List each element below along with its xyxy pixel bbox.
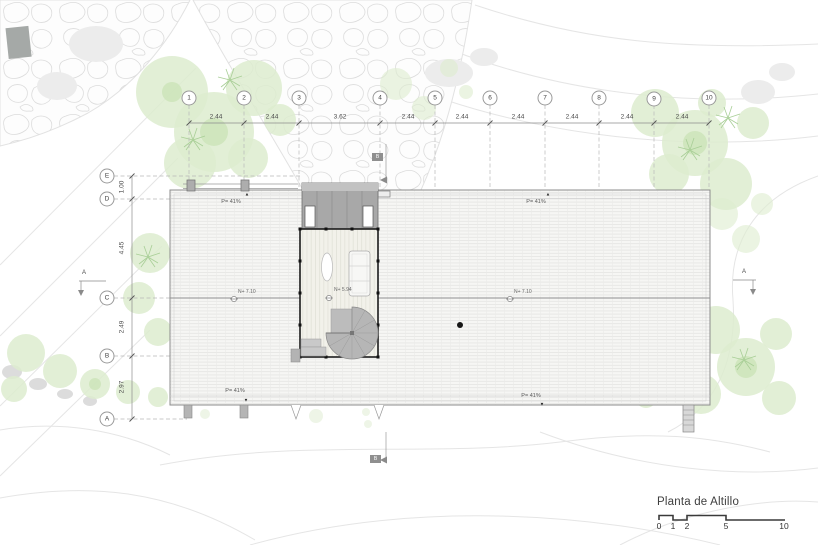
grid-column-bubble: 8 — [592, 91, 607, 106]
column-dimension: 2.44 — [210, 114, 223, 121]
grid-column-bubble: 2 — [237, 91, 252, 106]
roof-pitch-label: P= 41% — [521, 393, 540, 399]
altillo-volume — [291, 183, 380, 362]
column-dimension: 2.44 — [566, 114, 579, 121]
table — [322, 253, 333, 281]
column-dimension: 2.44 — [621, 114, 634, 121]
pitch-arrow-up-icon: ▲ — [245, 192, 249, 197]
roof-pitch-label: P= 41% — [225, 388, 244, 394]
section-b-label: B — [374, 456, 377, 462]
scale-label: 0 — [657, 521, 662, 531]
pitch-arrow-down-icon: ▼ — [244, 398, 248, 403]
grid-column-bubble: 10 — [702, 91, 717, 106]
scale-label: 1 — [671, 521, 676, 531]
scale-label: 2 — [685, 521, 690, 531]
rock-block — [5, 26, 31, 59]
grid-column-bubble: 4 — [373, 91, 388, 106]
scale-label: 10 — [779, 521, 788, 531]
grid-row-bubble: A — [100, 412, 115, 427]
column-dimension: 2.44 — [512, 114, 525, 121]
drawing-title: Planta de Altillo — [657, 496, 739, 508]
skylight-window — [363, 206, 373, 227]
spiral-stair — [326, 307, 378, 359]
column-dimension: 2.44 — [266, 114, 279, 121]
row-dimension: 2.97 — [119, 381, 126, 394]
column-dimension: 2.44 — [402, 114, 415, 121]
eave-elements — [184, 405, 694, 432]
column-dimension: 3.62 — [334, 114, 347, 121]
grid-column-bubble: 1 — [182, 91, 197, 106]
grid-column-bubble: 7 — [538, 91, 553, 106]
grid-row-bubble: D — [100, 192, 115, 207]
roof-vent-dot — [457, 322, 463, 328]
roof-pitch-label: P= 41% — [526, 199, 545, 205]
pitch-arrow-down-icon: ▼ — [540, 402, 544, 407]
grid-row-bubble: C — [100, 291, 115, 306]
row-dimension: 1.00 — [119, 181, 126, 194]
grid-column-bubble: 9 — [647, 92, 662, 107]
plan-graphics — [0, 0, 818, 545]
roof-level-label: N+ 7.10 — [514, 289, 532, 295]
grid-row-bubble: E — [100, 169, 115, 184]
grid-column-bubble: 5 — [428, 91, 443, 106]
altillo-level-label: N+ 5.94 — [334, 287, 352, 293]
row-dimension: 4.45 — [119, 242, 126, 255]
scale-label: 5 — [724, 521, 729, 531]
roof-level-label: N+ 7.10 — [238, 289, 256, 295]
main-roof — [170, 190, 710, 405]
ladder — [683, 405, 694, 432]
column-dimension: 2.44 — [676, 114, 689, 121]
row-dimension: 2.49 — [119, 321, 126, 334]
section-a-label: A — [82, 270, 86, 276]
column-dimension: 2.44 — [456, 114, 469, 121]
grid-row-bubble: B — [100, 349, 115, 364]
pitch-arrow-up-icon: ▲ — [546, 192, 550, 197]
grid-column-bubble: 3 — [292, 91, 307, 106]
section-a-label: A — [742, 269, 746, 275]
scale-bar — [659, 516, 785, 521]
grid-column-bubble: 6 — [483, 91, 498, 106]
site-plan-drawing: 1 2 3 4 5 6 7 8 9 10 2.44 2.44 3.62 2.44… — [0, 0, 818, 545]
skylight-window — [305, 206, 315, 227]
section-b-label: B — [376, 154, 379, 160]
roof-pitch-label: P= 41% — [221, 199, 240, 205]
sofa — [349, 251, 370, 296]
